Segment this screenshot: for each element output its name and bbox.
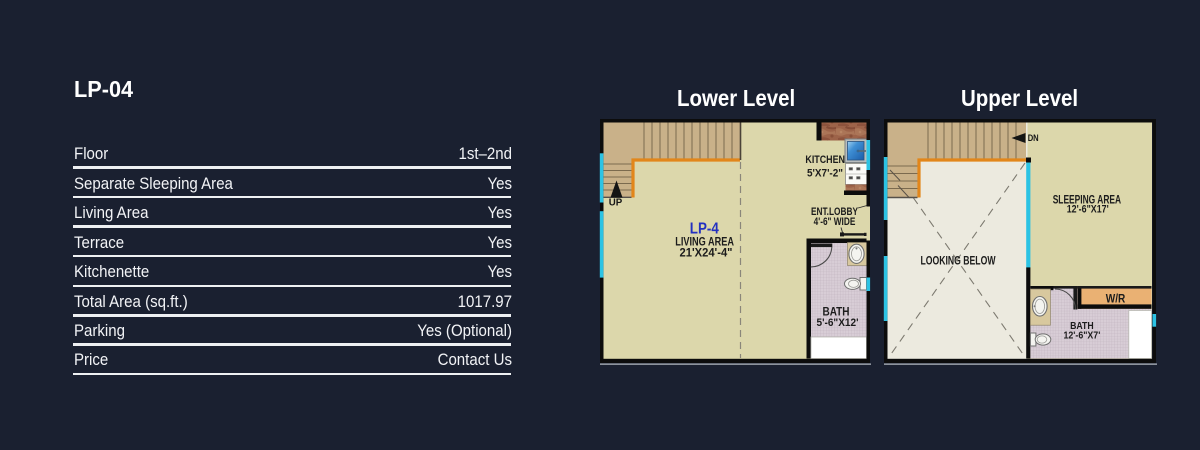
svg-text:5'X7'-2": 5'X7'-2"	[807, 168, 843, 180]
svg-text:LOOKING BELOW: LOOKING BELOW	[921, 256, 996, 268]
svg-text:UP: UP	[609, 198, 623, 209]
svg-text:5'-6"X12': 5'-6"X12'	[817, 317, 859, 329]
svg-text:W/R: W/R	[1106, 292, 1126, 306]
svg-text:LIVING AREA: LIVING AREA	[675, 236, 734, 248]
svg-text:21'X24'-4": 21'X24'-4"	[680, 248, 733, 260]
svg-text:DN: DN	[1028, 133, 1039, 144]
svg-text:12'-6"X17': 12'-6"X17'	[1067, 204, 1109, 216]
svg-text:12'-6"X7': 12'-6"X7'	[1064, 330, 1101, 342]
svg-text:4'-6" WIDE: 4'-6" WIDE	[814, 216, 856, 228]
svg-text:KITCHEN: KITCHEN	[805, 154, 845, 166]
svg-text:LP-4: LP-4	[690, 220, 719, 237]
